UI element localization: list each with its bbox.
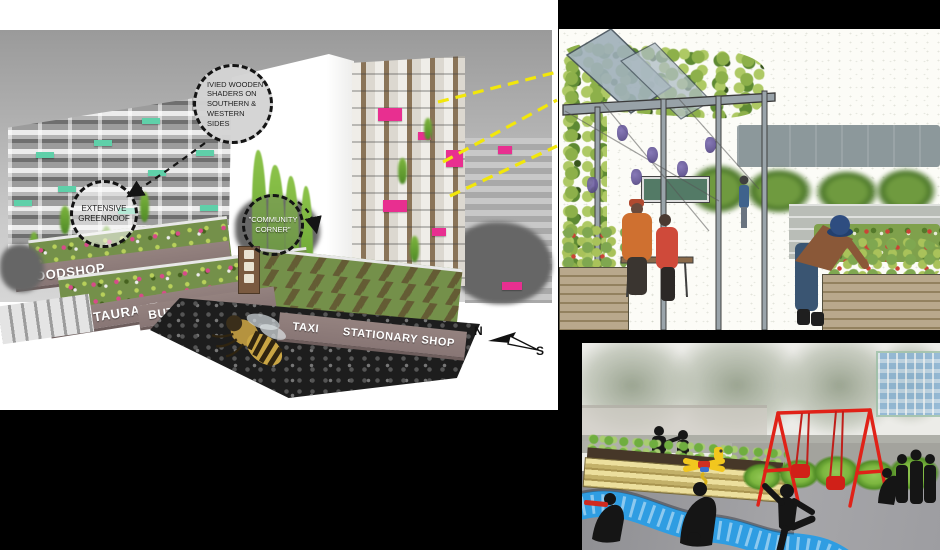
children-silhouettes <box>582 343 940 550</box>
masterplan-panel: FOODSHOP RESTAURANT BUTCHER'S TAXI STATI… <box>0 0 558 410</box>
pergola-sketch-panel <box>559 29 940 330</box>
sketch-people <box>559 29 940 330</box>
compass-south-label: S <box>536 344 544 358</box>
community-arrow <box>298 202 316 230</box>
shaders-arrow <box>130 143 205 195</box>
distant-person <box>739 185 749 208</box>
blue-hat <box>830 215 850 235</box>
presentation-board: FOODSHOP RESTAURANT BUTCHER'S TAXI STATI… <box>0 0 940 550</box>
yellow-callout-line <box>438 72 557 102</box>
compass: N S <box>470 322 556 362</box>
child-in-red <box>656 227 678 269</box>
orange-jacket-person <box>622 213 652 261</box>
playground-panel <box>582 343 940 550</box>
yellow-callout-line <box>450 146 557 196</box>
